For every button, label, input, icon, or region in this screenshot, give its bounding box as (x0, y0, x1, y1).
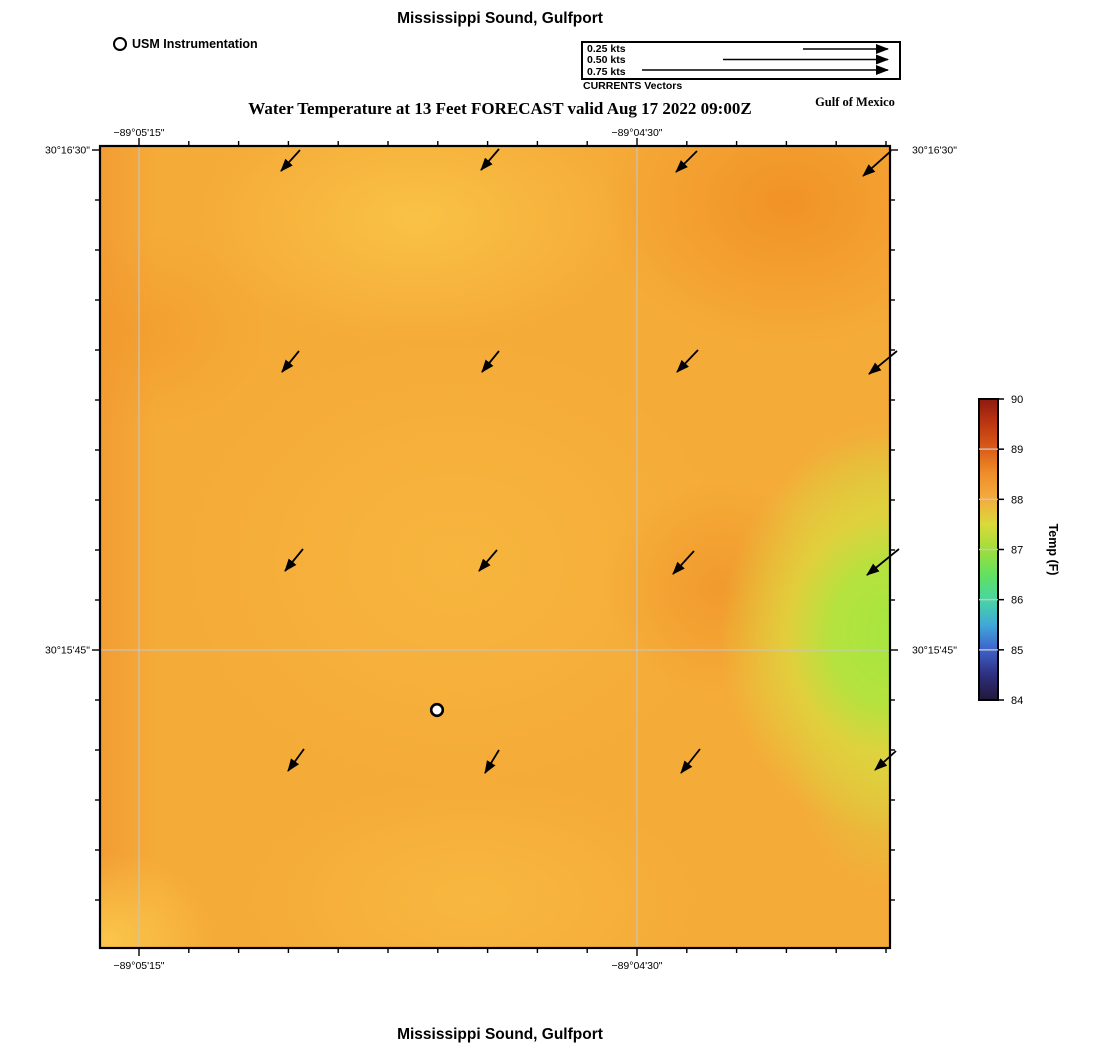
footer-title: Mississippi Sound, Gulfport (100, 1026, 900, 1044)
forecast-plot-page: Mississippi Sound, Gulfport USM Instrume… (0, 0, 1100, 1050)
current-vector-arrow (481, 149, 499, 170)
current-vector-arrow (869, 351, 897, 374)
colorbar-tick-label: 89 (1011, 444, 1023, 456)
x-tick-label-bottom: −89°05'15" (113, 960, 164, 972)
colorbar-tick-label: 88 (1011, 494, 1023, 506)
current-vector-arrow (676, 151, 697, 172)
colorbar-tick-label: 87 (1011, 545, 1023, 557)
y-tick-label-left: 30°15'45" (45, 645, 90, 657)
current-vector-arrow (681, 749, 700, 773)
y-tick-label-right: 30°16'30" (912, 145, 957, 157)
x-tick-label-top: −89°04'30" (611, 127, 662, 139)
colorbar-axis-label: Temp (F) (1046, 524, 1060, 576)
current-vector-arrow (281, 150, 300, 171)
station-marker (431, 704, 443, 716)
current-vector-arrow (479, 550, 497, 571)
x-tick-label-bottom: −89°04'30" (611, 960, 662, 972)
colorbar-tick-label: 86 (1011, 595, 1023, 607)
current-vector-arrow (282, 351, 299, 372)
current-vector-arrow (677, 350, 698, 372)
current-vector-arrow (485, 750, 499, 773)
current-vector-arrow (863, 151, 891, 176)
x-tick-label-top: −89°05'15" (113, 127, 164, 139)
current-vector-arrow (482, 351, 499, 372)
current-vector-arrow (875, 751, 896, 770)
y-tick-label-right: 30°15'45" (912, 645, 957, 657)
y-tick-label-left: 30°16'30" (45, 145, 90, 157)
plot-overlay: −89°05'15"−89°05'15"−89°04'30"−89°04'30"… (0, 0, 1100, 1050)
current-vector-arrow (285, 549, 303, 571)
current-vector-arrow (288, 749, 304, 771)
colorbar-tick-label: 84 (1011, 695, 1023, 707)
colorbar-tick-label: 85 (1011, 645, 1023, 657)
map-border (100, 146, 890, 948)
current-vector-arrow (867, 549, 899, 575)
colorbar-tick-label: 90 (1011, 394, 1023, 406)
current-vector-arrow (673, 551, 694, 574)
